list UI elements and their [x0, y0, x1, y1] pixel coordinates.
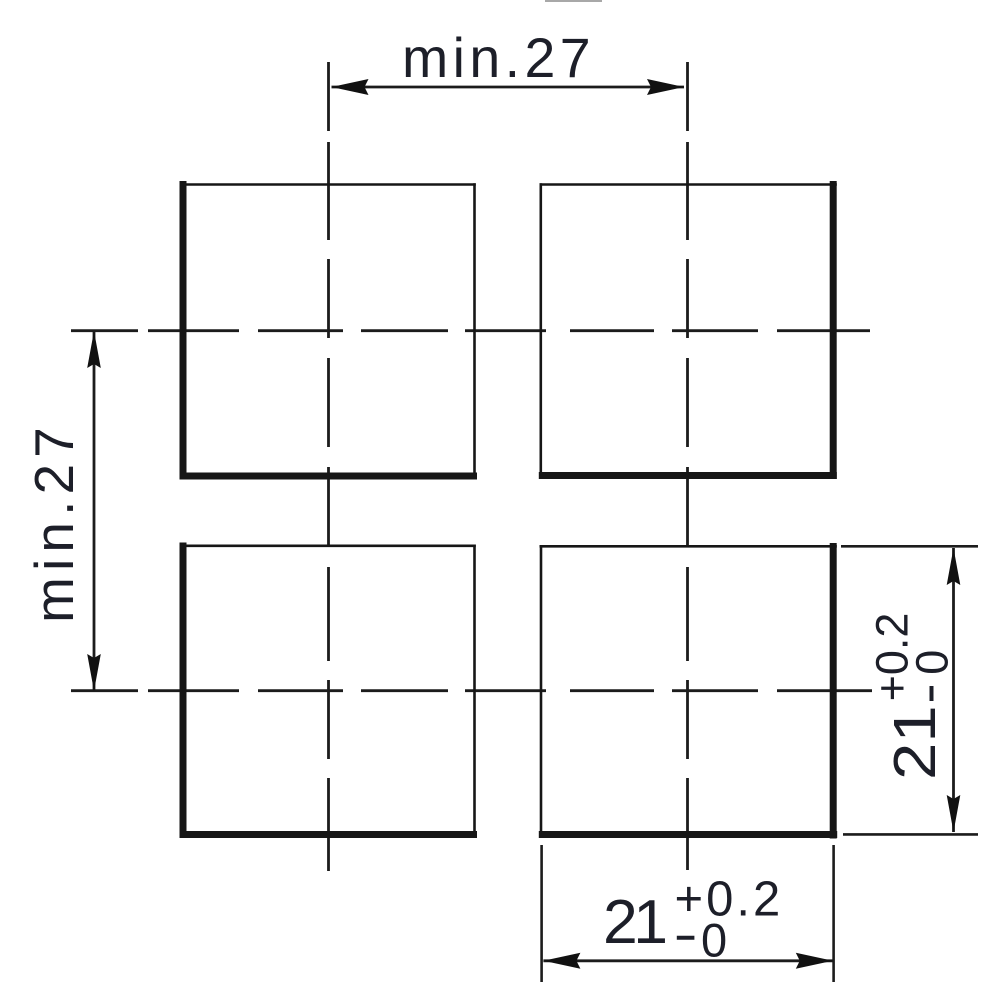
- svg-text:0: 0: [907, 650, 958, 675]
- svg-text:+0.2: +0.2: [675, 873, 784, 927]
- svg-text:min.27: min.27: [402, 27, 595, 89]
- svg-text:21: 21: [882, 705, 948, 780]
- svg-text:min.27: min.27: [23, 421, 85, 623]
- svg-text:0: 0: [701, 914, 727, 967]
- svg-text:21: 21: [603, 887, 665, 957]
